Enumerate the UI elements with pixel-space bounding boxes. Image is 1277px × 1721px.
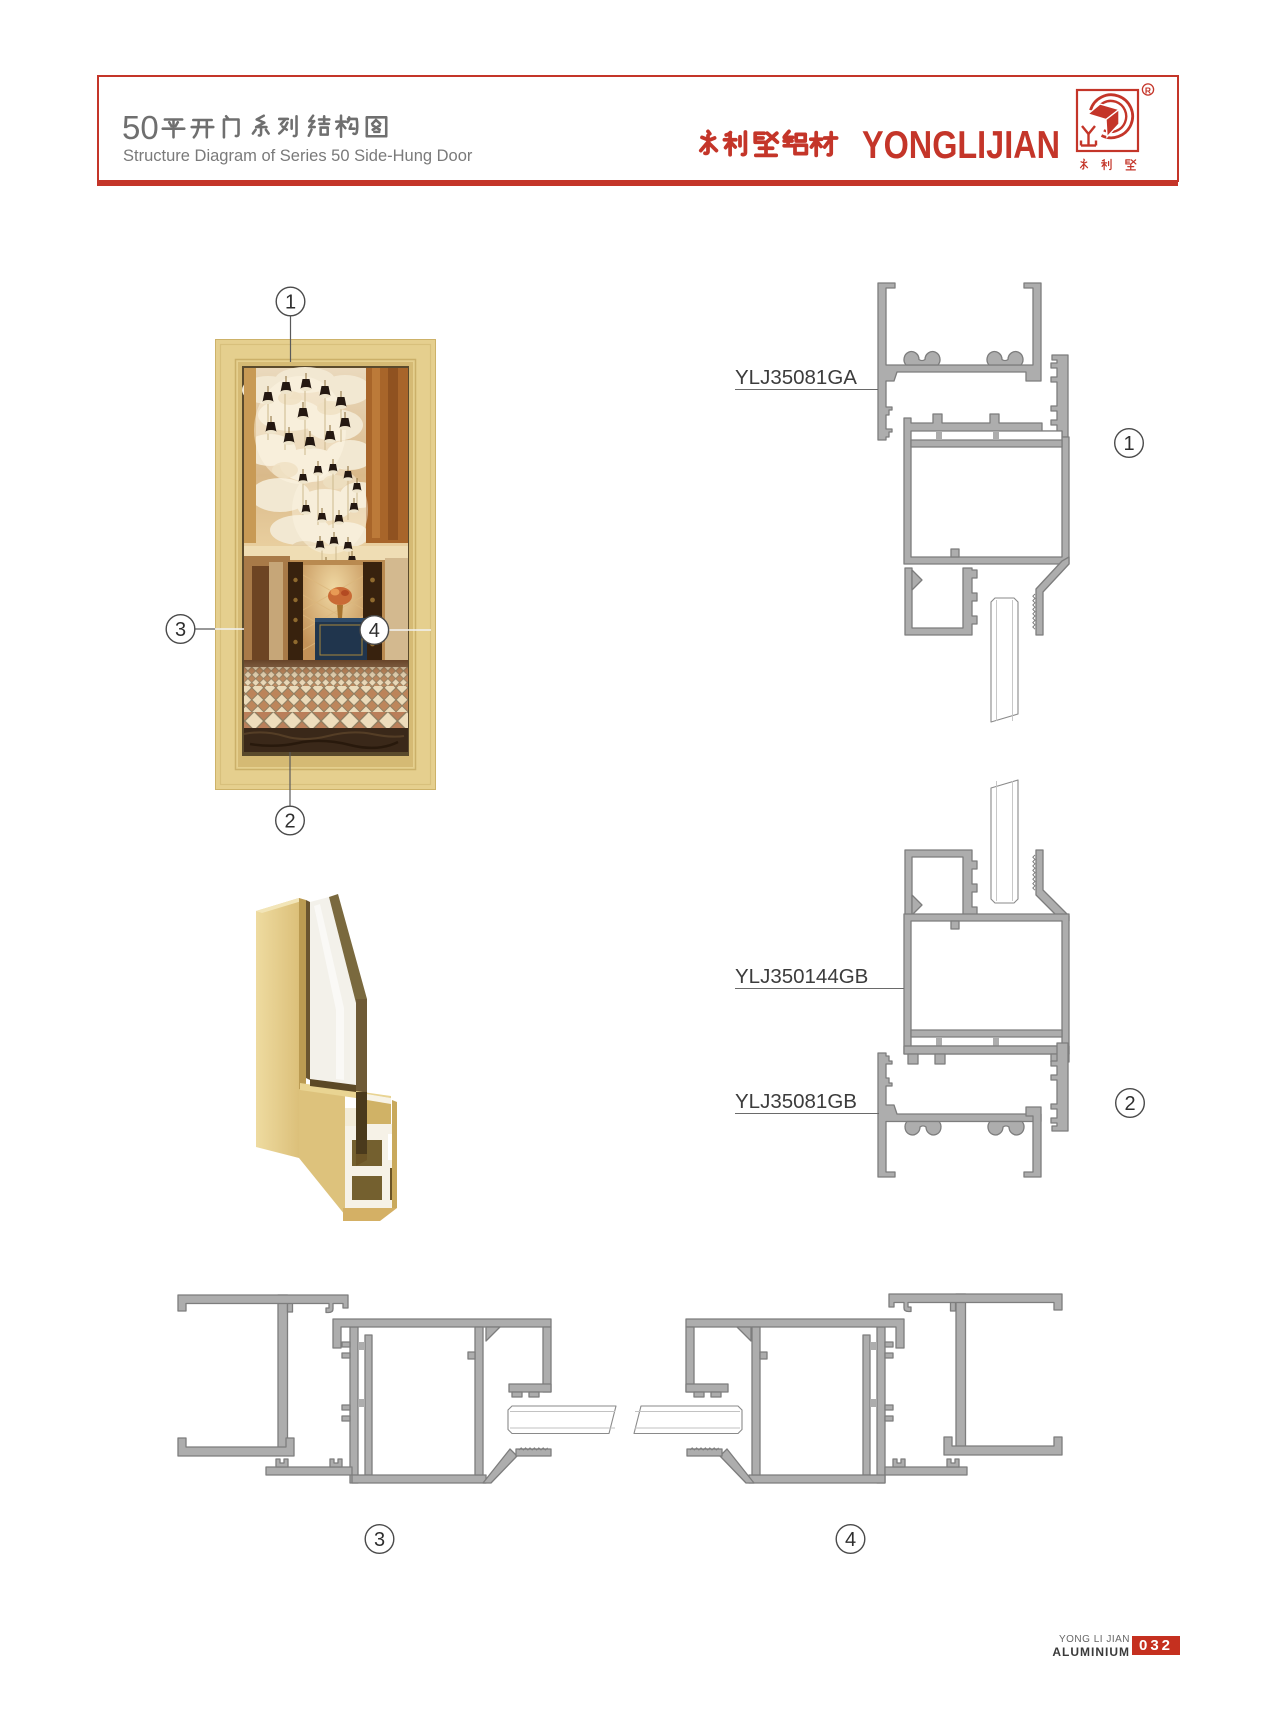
svg-text:2: 2 [284, 811, 295, 833]
svg-text:YLJ35081GA: YLJ35081GA [735, 366, 857, 389]
svg-text:YLJ35081GB: YLJ35081GB [735, 1090, 857, 1113]
svg-text:4: 4 [369, 620, 380, 642]
svg-text:1: 1 [1123, 433, 1134, 455]
svg-text:2: 2 [1124, 1093, 1135, 1115]
svg-text:50: 50 [122, 109, 159, 146]
svg-text:R: R [1145, 85, 1151, 95]
svg-text:YONGLIJIAN: YONGLIJIAN [862, 124, 1060, 167]
svg-text:4: 4 [845, 1529, 856, 1551]
svg-text:1: 1 [285, 292, 296, 314]
svg-text:3: 3 [374, 1529, 385, 1551]
svg-text:YLJ350144GB: YLJ350144GB [735, 965, 868, 988]
svg-text:3: 3 [175, 619, 186, 641]
